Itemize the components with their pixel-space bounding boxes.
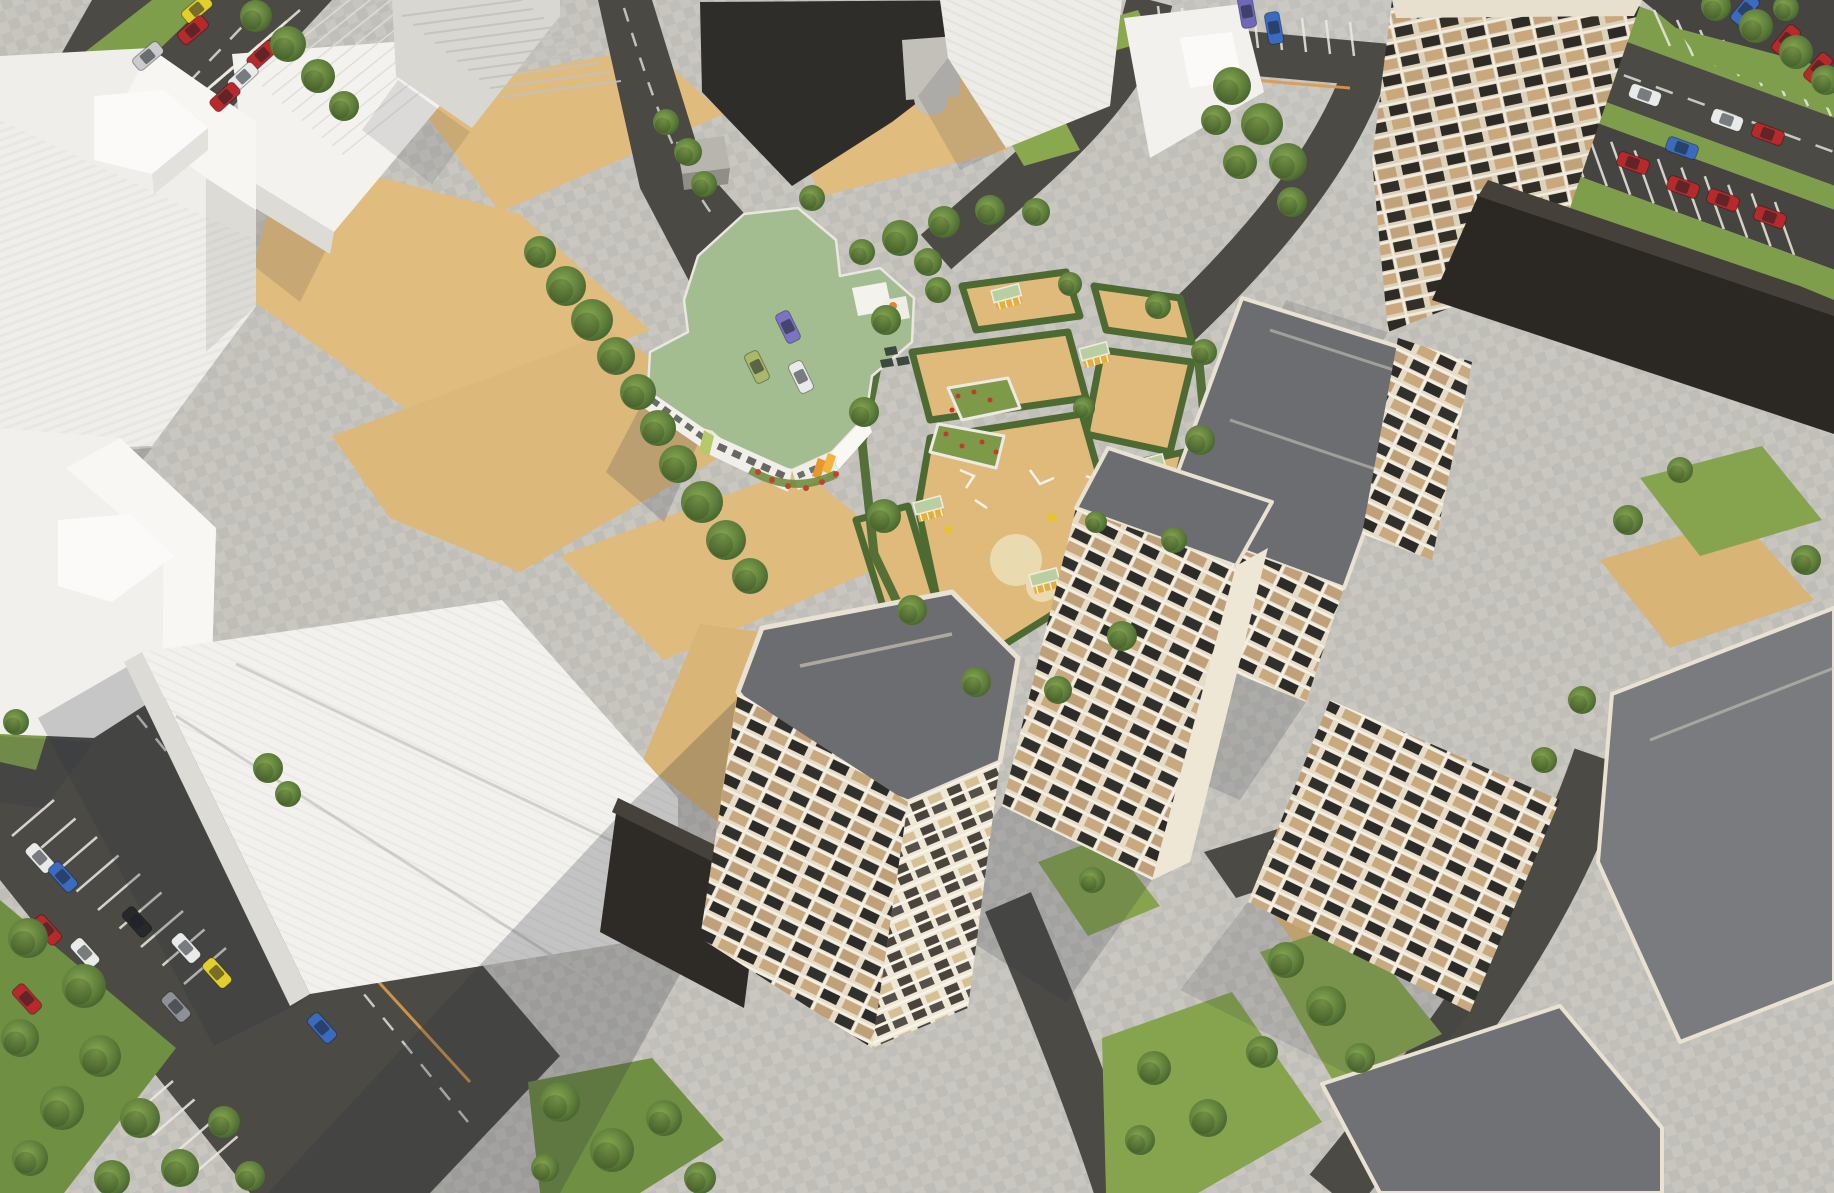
tree bbox=[79, 1035, 121, 1077]
tree bbox=[659, 445, 697, 483]
tree bbox=[1137, 1051, 1171, 1085]
tree bbox=[1107, 621, 1137, 651]
tree bbox=[571, 299, 613, 341]
play-yard bbox=[1094, 286, 1192, 342]
play-ball bbox=[944, 526, 952, 534]
tree bbox=[646, 1100, 682, 1136]
tree bbox=[161, 1149, 199, 1187]
tree bbox=[590, 1128, 634, 1172]
tree bbox=[684, 1162, 716, 1193]
flowers bbox=[950, 408, 955, 413]
tree bbox=[1125, 1125, 1155, 1155]
tree bbox=[1079, 867, 1105, 893]
tree bbox=[1044, 676, 1072, 704]
tree bbox=[1306, 986, 1346, 1026]
flowers bbox=[994, 450, 999, 455]
tree bbox=[640, 410, 676, 446]
flowers bbox=[944, 432, 949, 437]
tree bbox=[275, 781, 301, 807]
tree bbox=[1613, 505, 1643, 535]
flowers bbox=[988, 398, 993, 403]
tree bbox=[1191, 339, 1217, 365]
play-yard bbox=[1086, 350, 1192, 452]
tree bbox=[1058, 272, 1082, 296]
tree bbox=[120, 1098, 160, 1138]
tree bbox=[867, 499, 901, 533]
tree bbox=[1213, 67, 1251, 105]
tree bbox=[3, 709, 29, 735]
tree bbox=[1277, 187, 1307, 217]
tree bbox=[620, 374, 656, 410]
tree bbox=[1201, 105, 1231, 135]
flowers bbox=[785, 483, 791, 489]
tree bbox=[961, 667, 991, 697]
tree bbox=[329, 91, 359, 121]
tree bbox=[524, 236, 556, 268]
tree bbox=[928, 206, 960, 238]
tree bbox=[40, 1086, 84, 1130]
tree bbox=[681, 481, 723, 523]
tree bbox=[1246, 1036, 1278, 1068]
tree bbox=[653, 109, 679, 135]
render-viewport bbox=[0, 0, 1834, 1193]
tree bbox=[301, 59, 335, 93]
flowers bbox=[803, 485, 809, 491]
tree bbox=[1241, 103, 1283, 145]
tree bbox=[871, 305, 901, 335]
tree bbox=[849, 397, 879, 427]
tree bbox=[1779, 35, 1813, 69]
tree bbox=[799, 185, 825, 211]
tree bbox=[12, 1140, 48, 1176]
tree bbox=[540, 1082, 580, 1122]
scene-layer bbox=[0, 0, 1834, 1193]
tree bbox=[8, 918, 48, 958]
tree bbox=[62, 964, 106, 1008]
flowers bbox=[960, 444, 965, 449]
tree bbox=[208, 1106, 240, 1138]
tree bbox=[1, 1019, 39, 1057]
tree bbox=[1223, 145, 1257, 179]
tree bbox=[240, 0, 272, 32]
tree bbox=[732, 558, 768, 594]
tree bbox=[1161, 527, 1187, 553]
tree bbox=[1022, 198, 1050, 226]
tree bbox=[882, 220, 918, 256]
tree bbox=[1268, 942, 1304, 978]
tree bbox=[531, 1154, 559, 1182]
tree bbox=[1345, 1043, 1375, 1073]
tree bbox=[270, 26, 306, 62]
tree bbox=[914, 248, 942, 276]
tree bbox=[849, 239, 875, 265]
tree bbox=[235, 1161, 265, 1191]
tree bbox=[1739, 9, 1773, 43]
tree bbox=[546, 266, 586, 306]
flowers bbox=[819, 479, 825, 485]
tree bbox=[706, 520, 746, 560]
tree bbox=[597, 337, 635, 375]
tree bbox=[1531, 747, 1557, 773]
flowers bbox=[972, 390, 977, 395]
tree bbox=[1073, 397, 1095, 419]
flowers bbox=[769, 477, 775, 483]
tower-parapet bbox=[1392, 0, 1642, 18]
tree bbox=[1269, 143, 1307, 181]
tree bbox=[674, 138, 702, 166]
play-ball bbox=[1048, 514, 1057, 523]
tree bbox=[1568, 686, 1596, 714]
tree bbox=[897, 595, 927, 625]
aerial-render-svg bbox=[0, 0, 1834, 1193]
tree bbox=[1185, 425, 1215, 455]
flowers bbox=[956, 394, 961, 399]
tree bbox=[975, 195, 1005, 225]
tree bbox=[253, 753, 283, 783]
flowers bbox=[755, 469, 761, 475]
tree bbox=[1667, 457, 1693, 483]
tree bbox=[691, 171, 717, 197]
tree bbox=[1189, 1099, 1227, 1137]
tree bbox=[1145, 293, 1171, 319]
tree bbox=[1791, 545, 1821, 575]
tree bbox=[925, 277, 951, 303]
tree bbox=[1085, 511, 1107, 533]
flowers bbox=[980, 440, 985, 445]
flowers bbox=[833, 471, 839, 477]
